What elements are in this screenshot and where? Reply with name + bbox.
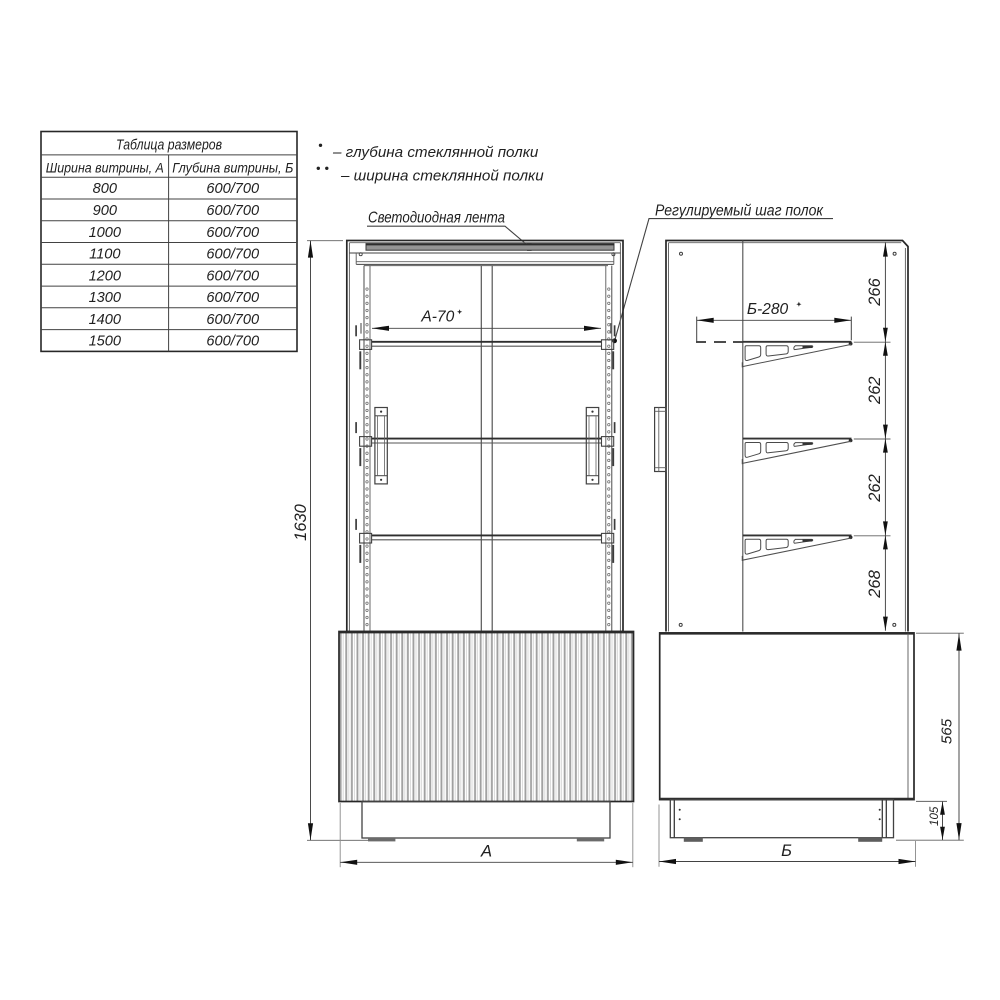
svg-text:600/700: 600/700 bbox=[206, 312, 259, 328]
svg-text:105: 105 bbox=[928, 806, 941, 826]
svg-text:1000: 1000 bbox=[89, 225, 121, 241]
svg-text:1200: 1200 bbox=[89, 268, 121, 284]
svg-text:268: 268 bbox=[866, 569, 884, 598]
svg-text:Регулируемый шаг полок: Регулируемый шаг полок bbox=[655, 202, 824, 219]
svg-text:– глубина стеклянной полки: – глубина стеклянной полки bbox=[332, 144, 539, 161]
svg-text:600/700: 600/700 bbox=[206, 334, 259, 350]
svg-text:Глубина витрины, Б: Глубина витрины, Б bbox=[172, 160, 293, 175]
svg-text:600/700: 600/700 bbox=[206, 268, 259, 284]
svg-text:Ширина витрины, А: Ширина витрины, А bbox=[46, 160, 164, 175]
svg-text:565: 565 bbox=[939, 718, 956, 744]
svg-text:1300: 1300 bbox=[89, 290, 121, 306]
svg-text:Б: Б bbox=[781, 841, 792, 860]
svg-text:Таблица размеров: Таблица размеров bbox=[116, 138, 222, 154]
svg-text:1100: 1100 bbox=[89, 247, 120, 263]
svg-text:600/700: 600/700 bbox=[206, 247, 259, 263]
svg-text:1500: 1500 bbox=[89, 334, 121, 350]
svg-text:Светодиодная лента: Светодиодная лента bbox=[368, 209, 505, 226]
svg-text:600/700: 600/700 bbox=[206, 203, 259, 219]
svg-text:266: 266 bbox=[866, 277, 884, 306]
svg-text:262: 262 bbox=[866, 376, 884, 405]
svg-text:600/700: 600/700 bbox=[206, 290, 259, 306]
svg-text:– ширина стеклянной полки: – ширина стеклянной полки bbox=[340, 167, 544, 184]
svg-text:А: А bbox=[480, 842, 492, 861]
svg-text:600/700: 600/700 bbox=[206, 181, 259, 197]
svg-text:Б-280: Б-280 bbox=[747, 301, 789, 318]
svg-text:1630: 1630 bbox=[292, 503, 310, 541]
svg-text:600/700: 600/700 bbox=[206, 225, 259, 241]
svg-text:1400: 1400 bbox=[89, 312, 121, 328]
svg-text:А-70: А-70 bbox=[420, 309, 454, 326]
svg-text:900: 900 bbox=[93, 203, 117, 219]
svg-text:262: 262 bbox=[866, 474, 884, 503]
svg-text:800: 800 bbox=[93, 181, 117, 197]
